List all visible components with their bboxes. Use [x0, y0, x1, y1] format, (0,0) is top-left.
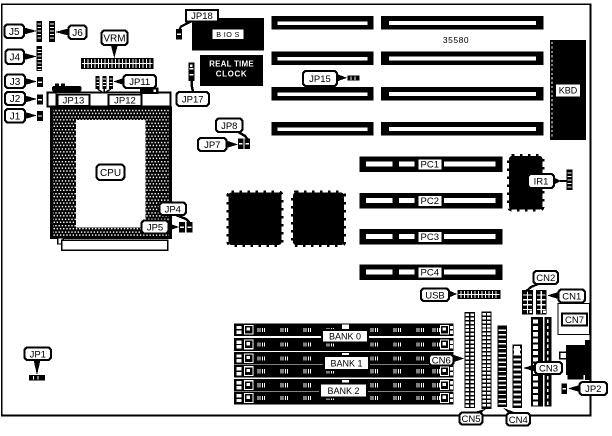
svg-text:CN1: CN1 — [562, 292, 581, 303]
svg-text:CPU: CPU — [100, 168, 121, 179]
svg-text:BANK 0: BANK 0 — [329, 332, 361, 342]
svg-text:BANK 2: BANK 2 — [327, 386, 359, 396]
svg-text:CN2: CN2 — [536, 273, 555, 284]
svg-text:KBD: KBD — [559, 86, 578, 96]
svg-text:REAL TIME: REAL TIME — [209, 60, 254, 69]
svg-text:JP15: JP15 — [309, 74, 331, 85]
svg-text:JP1: JP1 — [30, 349, 46, 360]
svg-text:JP7: JP7 — [204, 140, 220, 151]
svg-text:J1: J1 — [10, 111, 21, 122]
svg-text:CN7: CN7 — [565, 315, 584, 326]
svg-text:JP2: JP2 — [585, 384, 601, 395]
svg-text:JP17: JP17 — [182, 95, 204, 106]
svg-text:JP8: JP8 — [221, 121, 237, 132]
svg-text:J5: J5 — [9, 27, 20, 38]
svg-text:CN5: CN5 — [461, 414, 480, 425]
svg-text:IR1: IR1 — [534, 177, 549, 188]
svg-text:BANK 1: BANK 1 — [330, 358, 362, 368]
svg-text:J2: J2 — [10, 94, 21, 105]
svg-text:CN4: CN4 — [509, 415, 528, 426]
svg-text:J4: J4 — [9, 52, 20, 63]
svg-text:PC2: PC2 — [421, 196, 439, 207]
svg-text:35580: 35580 — [443, 35, 469, 45]
svg-text:CN6: CN6 — [432, 356, 451, 367]
svg-text:USB: USB — [425, 290, 445, 301]
svg-text:PC4: PC4 — [421, 268, 439, 279]
svg-text:J6: J6 — [72, 28, 83, 39]
svg-text:JP13: JP13 — [63, 96, 85, 107]
svg-text:CN3: CN3 — [539, 364, 558, 375]
svg-text:J3: J3 — [10, 77, 21, 88]
svg-text:B IO S: B IO S — [216, 30, 240, 39]
svg-text:VRM: VRM — [103, 33, 125, 44]
svg-text:PC3: PC3 — [421, 232, 439, 243]
svg-text:JP12: JP12 — [114, 96, 136, 107]
svg-text:JP11: JP11 — [129, 77, 150, 88]
svg-text:JP18: JP18 — [191, 11, 213, 22]
svg-text:JP5: JP5 — [147, 223, 163, 234]
svg-text:JP4: JP4 — [165, 204, 181, 215]
svg-text:PC1: PC1 — [421, 160, 439, 171]
svg-text:CLOCK: CLOCK — [216, 70, 247, 79]
